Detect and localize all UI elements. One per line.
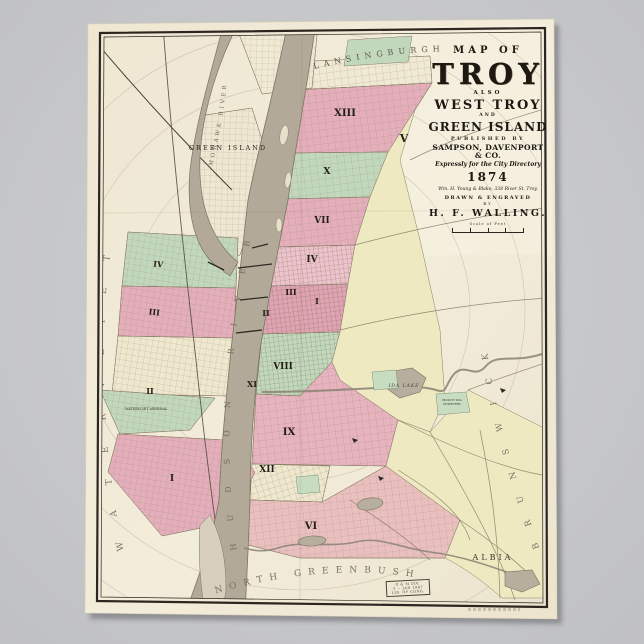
map-year: 1874 — [428, 171, 548, 184]
agent-line: Wm. H. Young & Blake, 338 River St. Troy… — [428, 188, 548, 193]
ward-label-iii: III — [285, 287, 296, 297]
mount-ida-cemetery-label-2: CEMETERY — [443, 402, 461, 406]
ward-label-xiii: XIII — [334, 108, 356, 119]
ward-label-xi: XI — [247, 379, 257, 389]
margin-catalog-mark — [468, 608, 520, 611]
green-island-label: GREEN ISLAND — [189, 144, 267, 152]
scale-label: Scale of Feet — [428, 223, 548, 227]
wt-ward-label-ii: II — [146, 386, 154, 396]
title-kicker: MAP OF — [428, 46, 548, 57]
title-and: AND — [428, 114, 548, 119]
drawn-engraved: DRAWN & ENGRAVED — [428, 196, 548, 201]
ward-label-i: I — [315, 296, 319, 306]
wt-ward-label-iv: IV — [153, 259, 165, 270]
wt-ward-label-iii: III — [148, 306, 160, 317]
ward-label-vii: VII — [313, 216, 329, 226]
ida-lake-label: IDA LAKE — [388, 383, 420, 389]
ward-label-x: X — [324, 167, 331, 177]
ward-label-xii: XII — [259, 465, 274, 475]
vintage-map-poster: WATERVLIET NORTH GREENBUSH BRUNSWICK LAN… — [0, 0, 644, 644]
by-line: BY — [428, 202, 548, 206]
albia-label: ALBIA — [472, 553, 514, 562]
library-stamp: G & M DIV. 3 — JAN 1887 LIB. OF CONG. — [386, 579, 431, 598]
title-block: MAP OF TROY ALSO WEST TROY AND GREEN ISL… — [428, 46, 548, 233]
ward-label-v: V — [399, 132, 409, 145]
ward-label-viii: VIII — [272, 362, 293, 372]
publisher-name: SAMPSON, DAVENPORT & CO. — [428, 144, 548, 160]
ward-label-iv: IV — [306, 255, 318, 265]
map-title: TROY — [428, 59, 548, 89]
title-green-island: GREEN ISLAND — [428, 121, 548, 134]
ward-label-ix: IX — [283, 427, 296, 438]
title-west-troy: WEST TROY — [428, 99, 548, 113]
wt-ward-label-i: I — [170, 474, 174, 484]
stamp-line-3: LIB. OF CONG. — [387, 589, 429, 595]
ward-label-vi: VI — [304, 521, 318, 532]
title-also: ALSO — [428, 91, 548, 97]
published-by: PUBLISHED BY — [428, 137, 548, 142]
arsenal-label: WATERVLIET ARSENAL — [125, 407, 168, 411]
scale-bar — [452, 228, 524, 233]
ward-label-ii: II — [262, 308, 270, 318]
title-tagline: Expressly for the City Directory — [428, 162, 548, 168]
engraver-name: H. F. WALLING. — [428, 209, 548, 219]
